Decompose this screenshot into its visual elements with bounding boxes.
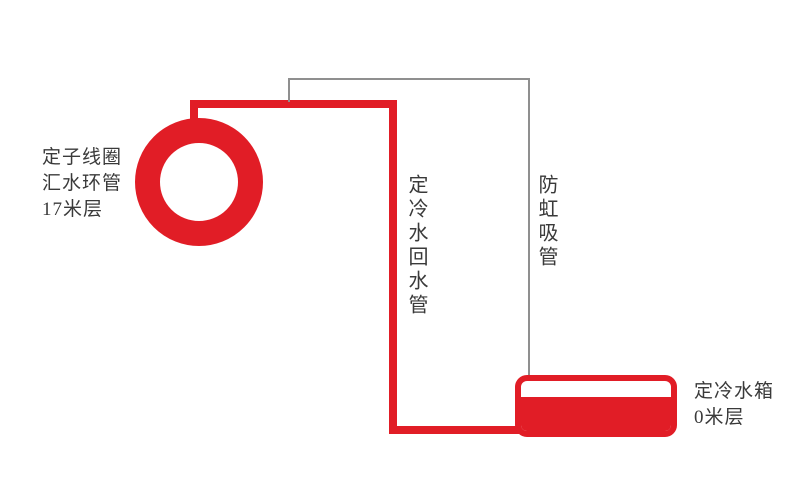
anti-siphon-pipe-label: 防虹吸管 [532,174,561,270]
anti-siphon-pipe-horizontal [288,78,530,80]
cooling-water-tank-shape [515,375,677,437]
return-pipe-bottom-horizontal [389,426,520,434]
ring-label: 定子线圈 汇水环管 17米层 [42,145,122,223]
tank-label: 定冷水箱 0米层 [694,379,774,431]
water-collection-ring-shape [135,118,263,246]
anti-siphon-pipe-junction-drop [288,79,290,102]
return-pipe-vertical [389,100,397,434]
anti-siphon-pipe-vertical [528,78,530,376]
tank-water-fill [521,397,671,431]
return-pipe-label: 定冷水回水管 [402,174,431,318]
return-pipe-top-horizontal [190,100,397,108]
cooling-water-system-diagram: 定子线圈 汇水环管 17米层 定冷水回水管 防虹吸管 定冷水箱 0米层 [0,0,800,500]
